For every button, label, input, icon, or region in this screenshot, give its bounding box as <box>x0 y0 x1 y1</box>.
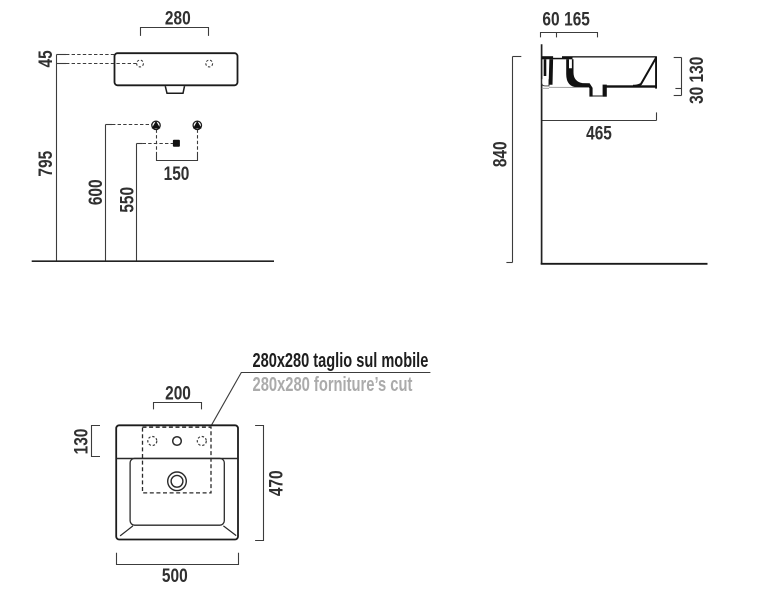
svg-text:45: 45 <box>35 50 57 67</box>
svg-text:60: 60 <box>542 8 559 30</box>
svg-text:840: 840 <box>489 141 511 167</box>
svg-text:130: 130 <box>70 429 92 455</box>
svg-text:500: 500 <box>162 564 188 586</box>
svg-text:200: 200 <box>165 382 191 404</box>
svg-text:550: 550 <box>116 187 138 213</box>
svg-text:465: 465 <box>586 122 612 144</box>
svg-text:165: 165 <box>564 8 590 30</box>
svg-text:280: 280 <box>165 7 191 29</box>
svg-text:30 130: 30 130 <box>685 57 707 104</box>
svg-text:470: 470 <box>265 470 287 496</box>
svg-text:600: 600 <box>85 179 107 205</box>
svg-text:280x280 taglio sul mobile: 280x280 taglio sul mobile <box>253 349 429 372</box>
svg-text:795: 795 <box>35 151 57 177</box>
svg-text:150: 150 <box>164 162 190 184</box>
svg-text:280x280 forniture’s cut: 280x280 forniture’s cut <box>253 373 413 396</box>
